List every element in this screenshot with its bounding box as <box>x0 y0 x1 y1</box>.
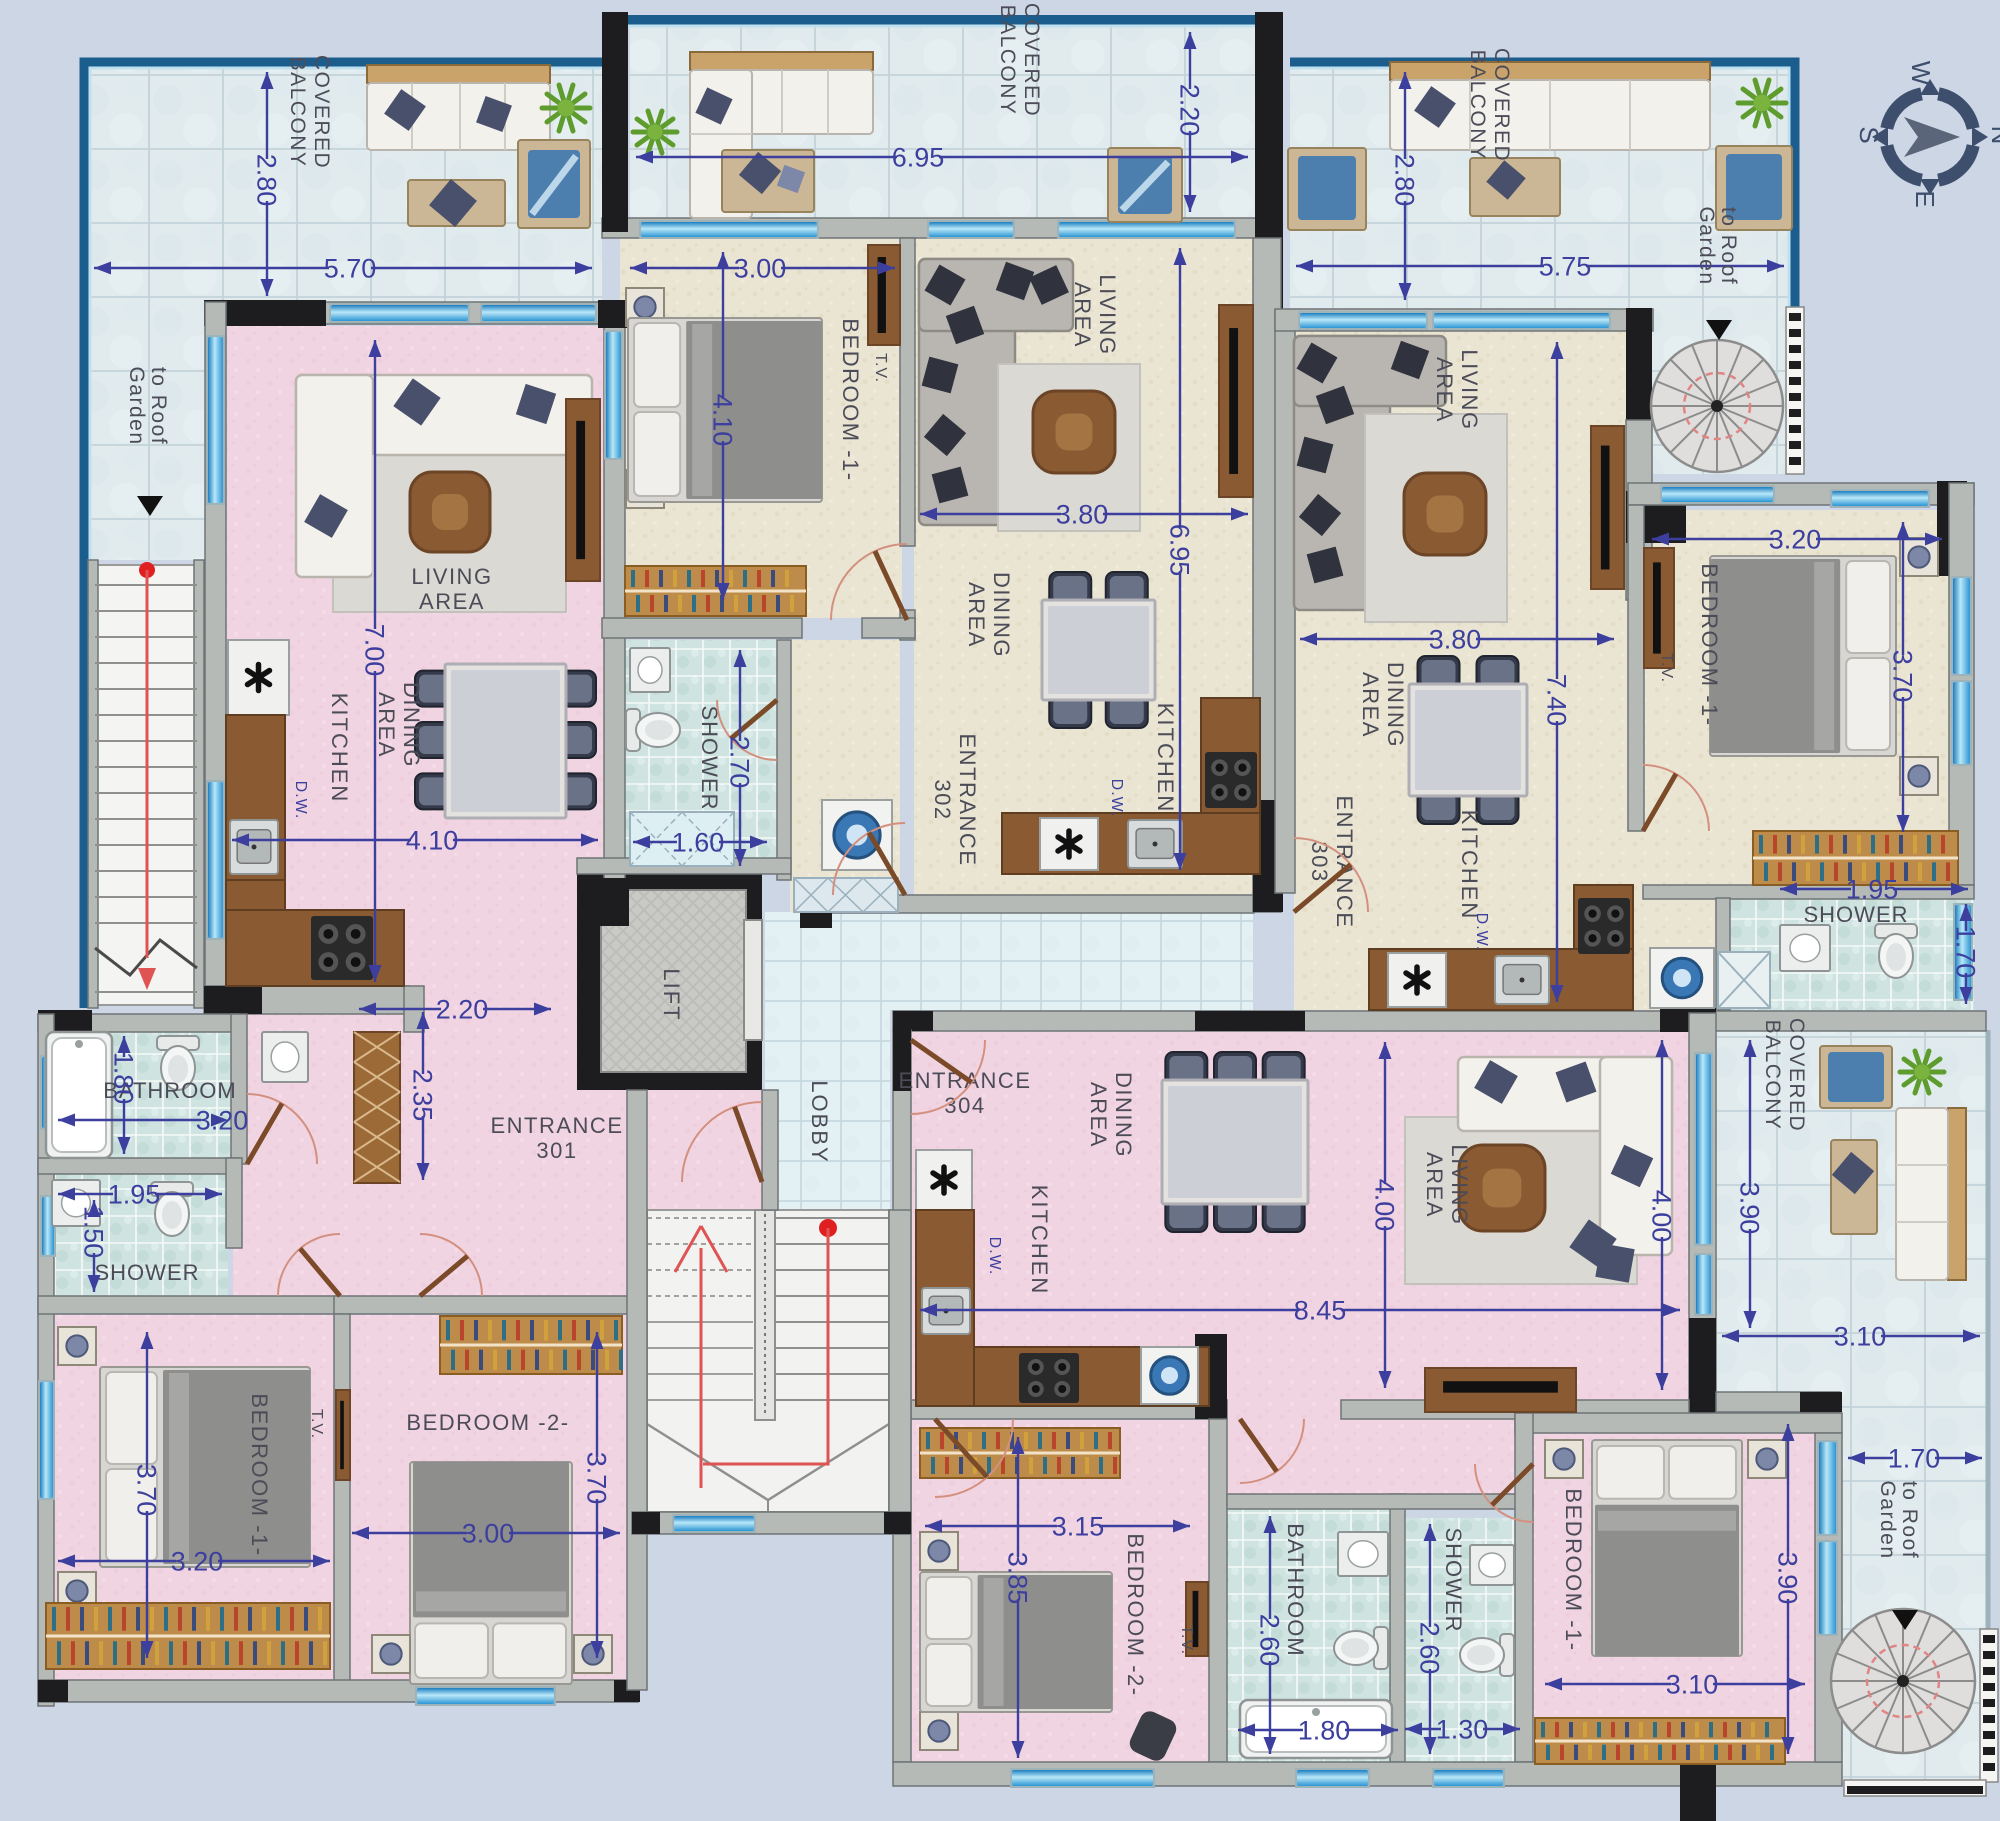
svg-text:AREA: AREA <box>1422 1152 1447 1218</box>
svg-text:S: S <box>1854 126 1884 143</box>
svg-text:4.10: 4.10 <box>406 826 459 856</box>
svg-text:3.90: 3.90 <box>1735 1182 1765 1235</box>
svg-text:BEDROOM -1-: BEDROOM -1- <box>247 1393 272 1556</box>
svg-text:W: W <box>1906 61 1936 86</box>
svg-text:ENTRANCE: ENTRANCE <box>490 1113 623 1138</box>
svg-text:AREA: AREA <box>1086 1082 1111 1148</box>
svg-text:1.70: 1.70 <box>1888 1444 1941 1474</box>
svg-text:Garden: Garden <box>125 366 148 445</box>
svg-text:3.20: 3.20 <box>1769 525 1822 555</box>
svg-text:3.90: 3.90 <box>1773 1552 1803 1605</box>
svg-text:LIVING: LIVING <box>1095 274 1120 355</box>
svg-text:3.20: 3.20 <box>171 1547 224 1577</box>
svg-text:D.W.: D.W. <box>292 781 309 820</box>
svg-text:LIFT: LIFT <box>659 968 684 1021</box>
svg-text:2.60: 2.60 <box>1255 1614 1285 1667</box>
svg-text:BEDROOM -1-: BEDROOM -1- <box>1561 1488 1586 1651</box>
svg-text:D.W.: D.W. <box>1108 779 1125 818</box>
svg-text:SHOWER: SHOWER <box>95 1260 200 1285</box>
svg-text:ENTRANCE: ENTRANCE <box>955 733 980 866</box>
svg-text:KITCHEN: KITCHEN <box>1027 1185 1052 1296</box>
svg-text:BALCONY: BALCONY <box>1761 1020 1784 1131</box>
svg-text:E: E <box>1910 190 1940 207</box>
svg-text:LIVING: LIVING <box>1447 1144 1472 1225</box>
svg-text:to Roof: to Roof <box>1717 207 1740 285</box>
svg-text:N: N <box>1986 126 2000 145</box>
svg-text:DINING: DINING <box>989 572 1014 658</box>
svg-text:T.V.: T.V. <box>1178 1625 1195 1655</box>
svg-text:1.80: 1.80 <box>109 1052 139 1105</box>
svg-text:3.15: 3.15 <box>1052 1512 1105 1542</box>
svg-text:3.70: 3.70 <box>132 1464 162 1517</box>
svg-text:1.70: 1.70 <box>1951 926 1981 979</box>
svg-text:BEDROOM -2-: BEDROOM -2- <box>1123 1533 1148 1696</box>
svg-text:2.80: 2.80 <box>1390 154 1420 207</box>
svg-text:3.00: 3.00 <box>462 1519 515 1549</box>
svg-text:7.00: 7.00 <box>360 624 390 677</box>
svg-text:3.10: 3.10 <box>1666 1670 1719 1700</box>
svg-text:DINING: DINING <box>1383 662 1408 748</box>
svg-text:ENTRANCE: ENTRANCE <box>1332 795 1357 928</box>
svg-text:4.00: 4.00 <box>1647 1190 1677 1243</box>
svg-text:D.W.: D.W. <box>986 1237 1003 1276</box>
svg-text:302: 302 <box>930 779 955 820</box>
svg-text:AREA: AREA <box>1070 282 1095 348</box>
svg-text:304: 304 <box>944 1093 985 1118</box>
svg-text:T.V.: T.V. <box>872 353 889 383</box>
svg-text:COVERED: COVERED <box>1490 48 1513 162</box>
svg-text:2.80: 2.80 <box>252 154 282 207</box>
svg-text:T.V.: T.V. <box>1658 653 1675 683</box>
svg-text:DINING: DINING <box>399 682 424 768</box>
svg-text:Garden: Garden <box>1695 206 1718 285</box>
svg-text:3.70: 3.70 <box>1888 650 1918 703</box>
svg-text:LIVING: LIVING <box>1457 349 1482 430</box>
svg-text:5.75: 5.75 <box>1539 252 1592 282</box>
svg-text:2.20: 2.20 <box>1175 84 1205 137</box>
svg-text:301: 301 <box>536 1138 577 1163</box>
svg-text:6.95: 6.95 <box>1165 524 1195 577</box>
svg-text:T.V.: T.V. <box>308 1409 325 1439</box>
svg-text:1.30: 1.30 <box>1436 1715 1489 1745</box>
svg-text:3.00: 3.00 <box>734 254 787 284</box>
svg-text:to Roof: to Roof <box>1898 1481 1921 1559</box>
svg-text:to Roof: to Roof <box>147 367 170 445</box>
svg-text:6.95: 6.95 <box>892 143 945 173</box>
svg-text:D.W.: D.W. <box>1473 913 1490 952</box>
svg-text:3.85: 3.85 <box>1003 1552 1033 1605</box>
svg-text:303: 303 <box>1307 841 1332 882</box>
svg-text:COVERED: COVERED <box>1785 1018 1808 1132</box>
svg-text:BEDROOM -1-: BEDROOM -1- <box>1697 563 1722 726</box>
svg-text:1.95: 1.95 <box>108 1180 161 1210</box>
svg-text:1.60: 1.60 <box>672 828 725 858</box>
svg-text:1.95: 1.95 <box>1846 875 1899 905</box>
svg-text:COVERED: COVERED <box>1020 3 1043 117</box>
svg-text:Garden: Garden <box>1876 1480 1899 1559</box>
svg-text:COVERED: COVERED <box>310 55 333 169</box>
svg-text:KITCHEN: KITCHEN <box>1153 703 1178 814</box>
svg-text:LOBBY: LOBBY <box>807 1080 832 1163</box>
svg-text:SHOWER: SHOWER <box>697 706 722 811</box>
svg-text:BATHROOM: BATHROOM <box>1283 1523 1308 1656</box>
svg-text:1.80: 1.80 <box>1298 1716 1351 1746</box>
svg-text:AREA: AREA <box>964 582 989 648</box>
svg-text:3.80: 3.80 <box>1429 625 1482 655</box>
svg-text:BALCONY: BALCONY <box>286 57 309 168</box>
svg-text:5.70: 5.70 <box>324 254 377 284</box>
svg-text:BEDROOM -2-: BEDROOM -2- <box>406 1410 569 1435</box>
svg-text:KITCHEN: KITCHEN <box>1457 810 1482 921</box>
svg-text:DINING: DINING <box>1111 1072 1136 1158</box>
svg-text:LIVING: LIVING <box>411 564 492 589</box>
svg-text:AREA: AREA <box>1358 672 1383 738</box>
svg-text:2.20: 2.20 <box>436 995 489 1025</box>
svg-text:4.00: 4.00 <box>1370 1179 1400 1232</box>
svg-text:8.45: 8.45 <box>1294 1296 1347 1326</box>
svg-text:3.80: 3.80 <box>1056 500 1109 530</box>
svg-text:BALCONY: BALCONY <box>996 5 1019 116</box>
svg-text:2.60: 2.60 <box>1415 1622 1445 1675</box>
svg-text:SHOWER: SHOWER <box>1804 902 1909 927</box>
svg-text:3.70: 3.70 <box>582 1452 612 1505</box>
svg-text:AREA: AREA <box>1432 357 1457 423</box>
svg-text:BEDROOM -1-: BEDROOM -1- <box>838 318 863 481</box>
svg-text:7.40: 7.40 <box>1542 674 1572 727</box>
svg-text:BALCONY: BALCONY <box>1466 50 1489 161</box>
svg-text:4.10: 4.10 <box>708 394 738 447</box>
svg-text:AREA: AREA <box>419 589 485 614</box>
svg-text:3.10: 3.10 <box>1834 1322 1887 1352</box>
svg-text:2.70: 2.70 <box>725 736 755 789</box>
svg-text:AREA: AREA <box>374 692 399 758</box>
svg-text:KITCHEN: KITCHEN <box>327 693 352 804</box>
svg-text:2.35: 2.35 <box>408 1069 438 1122</box>
svg-text:SHOWER: SHOWER <box>1441 1528 1466 1633</box>
